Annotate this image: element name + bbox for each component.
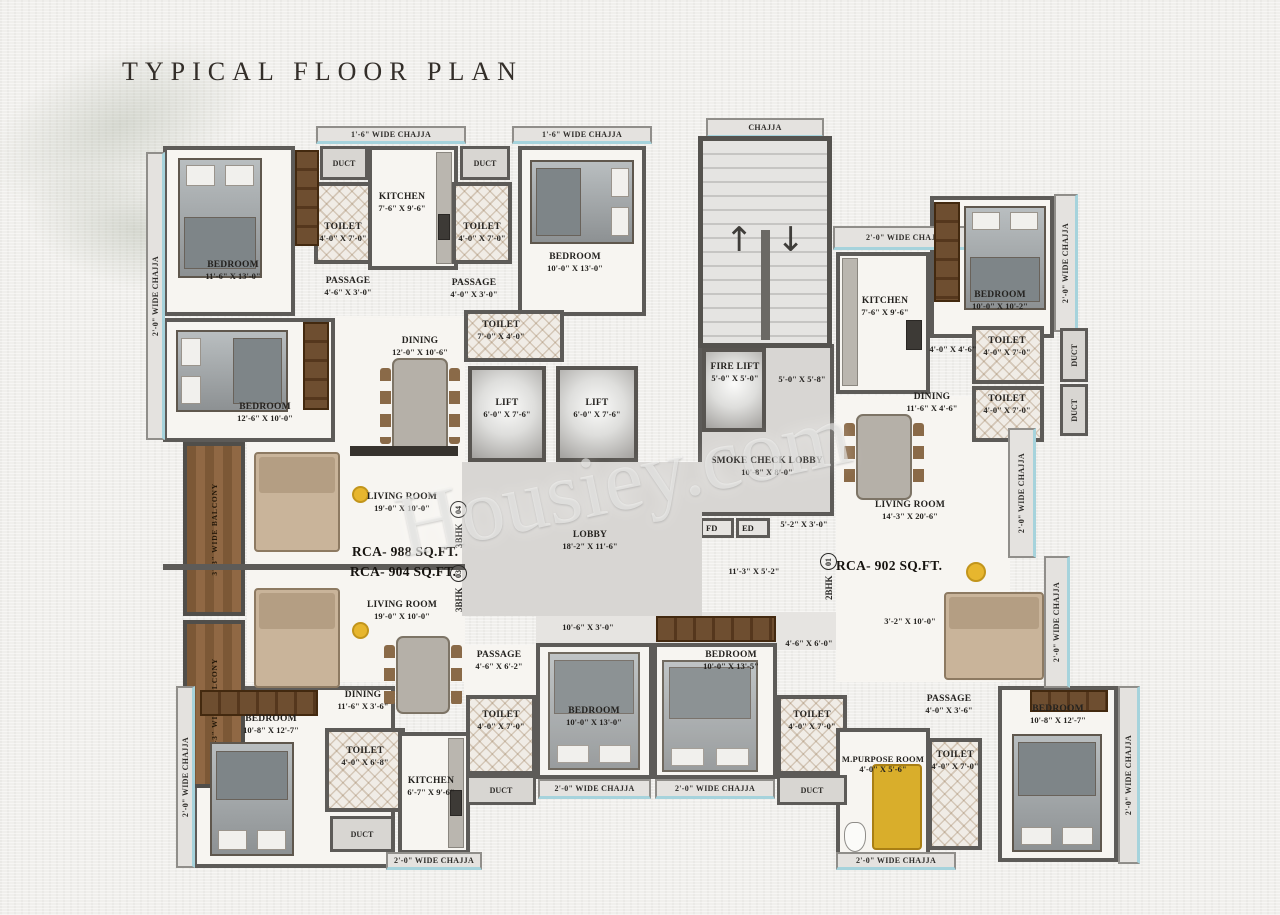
fd-label: FD [706, 523, 717, 533]
bed-icon [964, 206, 1046, 310]
blanket-icon [669, 667, 752, 719]
wardrobe-icon [295, 150, 319, 246]
bed-icon [178, 158, 262, 278]
duct-label: DUCT [1070, 399, 1079, 422]
bed-icon [176, 330, 288, 412]
blanket-icon [216, 751, 288, 801]
chajja-right-v1: 2'-0" WIDE CHAJJA [1054, 194, 1078, 332]
room-dims: 4'-0" X 3'-0" [450, 289, 497, 299]
chajja-label: 2'-0" WIDE CHAJJA [1017, 453, 1026, 533]
toilet-core [464, 310, 564, 362]
stove-icon [438, 214, 450, 240]
chajja-label: 2'-0" WIDE CHAJJA [394, 856, 474, 865]
pillow-icon [181, 376, 200, 404]
lobby-dims-2: 11'-3" X 5'-2" [722, 566, 786, 576]
bed-icon [530, 160, 634, 244]
dining-table-icon [856, 414, 912, 500]
flat-03-marker: 3BHK 03 [450, 565, 467, 612]
blanket-icon [233, 338, 282, 404]
pillow-icon [257, 830, 286, 850]
stair-divider [761, 230, 770, 340]
duct-label: DUCT [1070, 344, 1079, 367]
chajja-bottom-center-a: 2'-0" WIDE CHAJJA [538, 779, 651, 799]
staircase: ↑ ↓ [698, 136, 832, 348]
wardrobe-icon [200, 690, 318, 716]
duct-right-a: DUCT [1060, 328, 1088, 382]
pillow-icon [1021, 827, 1052, 845]
chajja-left-bottom: 2'-0" WIDE CHAJJA [176, 686, 195, 868]
fd-dims: 5'-2" X 3'-0" [774, 519, 834, 529]
chajja-right-v2: 2'-0" WIDE CHAJJA [1008, 428, 1036, 558]
toilet-right-a [972, 326, 1044, 384]
duct-bottom-center-left: DUCT [466, 775, 536, 805]
pillow-icon [611, 207, 629, 236]
kitchen-counter [842, 258, 858, 386]
chajja-staircase: CHAJJA [706, 118, 824, 138]
chajja-bottom-center-b: 2'-0" WIDE CHAJJA [655, 779, 775, 799]
pillow-icon [218, 830, 247, 850]
dining-table-icon [396, 636, 450, 714]
toilet-top-left-b [452, 182, 512, 264]
toilet-bottom-center-left [466, 695, 536, 775]
pouf-icon [352, 486, 369, 503]
blanket-icon [184, 217, 256, 269]
blanket-icon [1018, 742, 1095, 797]
flat-01-marker: 2BHK 01 [820, 553, 837, 600]
chajja-label: CHAJJA [748, 123, 781, 132]
toilet-top-left-a [314, 182, 372, 264]
duct-label: DUCT [351, 830, 374, 839]
duct-bottom-center-right: DUCT [777, 775, 847, 805]
fire-lobby-dims: 5'-0" X 5'-8" [772, 374, 832, 384]
chajja-bottom-right-v: 2'-0" WIDE CHAJJA [1118, 686, 1140, 864]
bed-icon [548, 652, 640, 770]
sofa-icon [254, 588, 340, 688]
tv-unit-icon [350, 446, 458, 456]
pillow-icon [557, 745, 589, 763]
blanket-icon [554, 660, 633, 715]
duct-top-left-b: DUCT [460, 146, 510, 180]
room-name: PASSAGE [326, 276, 371, 287]
room-name: PASSAGE [927, 694, 972, 705]
sofa-icon [944, 592, 1044, 680]
pouf-icon [966, 562, 986, 582]
pillow-icon [972, 212, 1000, 230]
chajja-label: 2'-0" WIDE CHAJJA [181, 737, 190, 817]
chajja-label: 1'-6" WIDE CHAJJA [351, 130, 431, 139]
chajja-label: 2'-0" WIDE CHAJJA [151, 256, 160, 336]
pillow-icon [1010, 212, 1038, 230]
chajja-bottom-right-h: 2'-0" WIDE CHAJJA [836, 852, 956, 870]
right-passage-dims: 4'-0" X 4'-6" [922, 344, 984, 354]
chajja-top-a: 1'-6" WIDE CHAJJA [316, 126, 466, 144]
passage-bottom-right-label: PASSAGE 4'-0" X 3'-6" [918, 694, 980, 715]
floor-plan: TYPICAL FLOOR PLAN 2'-0" WIDE CHAJJA BED… [0, 0, 1280, 915]
chajja-left-top: 2'-0" WIDE CHAJJA [146, 152, 165, 440]
pillow-icon [1062, 827, 1093, 845]
chajja-bottom-left: 2'-0" WIDE CHAJJA [386, 852, 482, 870]
blanket-icon [536, 168, 581, 235]
flat-number: 01 [820, 553, 837, 570]
stair-down-arrow-icon: ↓ [777, 223, 806, 257]
fridge-icon [906, 320, 922, 350]
pillow-icon [225, 165, 254, 186]
chajja-top-b: 1'-6" WIDE CHAJJA [512, 126, 652, 144]
pillow-icon [186, 165, 215, 186]
chajja-label: 2'-0" WIDE CHAJJA [1061, 223, 1070, 303]
kitchen-counter [436, 152, 452, 264]
page-title: TYPICAL FLOOR PLAN [122, 57, 523, 87]
flat-type: 3BHK [454, 587, 464, 612]
duct-top-left-a: DUCT [320, 146, 368, 180]
chajja-label: 2'-0" WIDE CHAJJA [675, 784, 755, 793]
bottom-center-dims: 4'-6" X 6'-0" [778, 638, 840, 648]
room-name: PASSAGE [452, 278, 497, 289]
wardrobe-icon [934, 202, 960, 302]
chajja-label: 2'-0" WIDE CHAJJA [554, 784, 634, 793]
pillow-icon [181, 338, 200, 366]
toilet-bottom-right [928, 738, 982, 850]
duct-right-b: DUCT [1060, 384, 1088, 436]
flat-type: 2BHK [824, 575, 834, 600]
single-bed-icon [872, 764, 922, 850]
wardrobe-icon [303, 322, 329, 410]
duct-label: DUCT [801, 786, 824, 795]
bed-icon [662, 660, 758, 772]
bed-icon [210, 742, 294, 856]
duct-label: DUCT [333, 159, 356, 168]
wardrobe-icon [1030, 690, 1108, 712]
chajja-label: 2'-0" WIDE CHAJJA [1052, 582, 1061, 662]
chajja-label: 2'-0" WIDE CHAJJA [856, 856, 936, 865]
wardrobe-icon [656, 616, 776, 642]
passage-bottom-center-area [464, 645, 536, 695]
pouf-icon [352, 622, 369, 639]
duct-bottom-left: DUCT [330, 816, 394, 852]
duct-label: DUCT [474, 159, 497, 168]
wc-icon [844, 822, 866, 852]
pillow-icon [599, 745, 631, 763]
pillow-icon [611, 168, 629, 197]
flat01-area-label: RCA- 902 SQ.FT. [836, 558, 942, 574]
corridor-dims: 10'-6" X 3'-0" [548, 622, 628, 632]
balcony-upper: 3'-3" WIDE BALCONY [183, 442, 245, 616]
pillow-icon [716, 748, 749, 765]
passage-top-left-b-label: PASSAGE 4'-0" X 3'-0" [442, 278, 506, 299]
room-dims: 4'-0" X 3'-6" [925, 705, 972, 715]
balcony-label: 3'-3" WIDE BALCONY [210, 483, 219, 576]
toilet-bottom-left [325, 728, 405, 812]
duct-label: DUCT [490, 786, 513, 795]
right-bottom-dims: 3'-2" X 10'-0" [878, 616, 942, 626]
dining-table-icon [392, 358, 448, 454]
room-dims: 4'-6" X 3'-0" [324, 287, 371, 297]
passage-top-left-a-label: PASSAGE 4'-6" X 3'-0" [316, 276, 380, 297]
chajja-right-v3: 2'-0" WIDE CHAJJA [1044, 556, 1070, 688]
bed-icon [1012, 734, 1102, 852]
ed-label: ED [742, 523, 754, 533]
stove-icon [450, 790, 462, 816]
pillow-icon [671, 748, 704, 765]
blanket-icon [970, 257, 1040, 302]
chajja-label: 2'-0" WIDE CHAJJA [1124, 735, 1133, 815]
chajja-label: 1'-6" WIDE CHAJJA [542, 130, 622, 139]
sofa-icon [254, 452, 340, 552]
stair-up-arrow-icon: ↑ [725, 223, 754, 257]
